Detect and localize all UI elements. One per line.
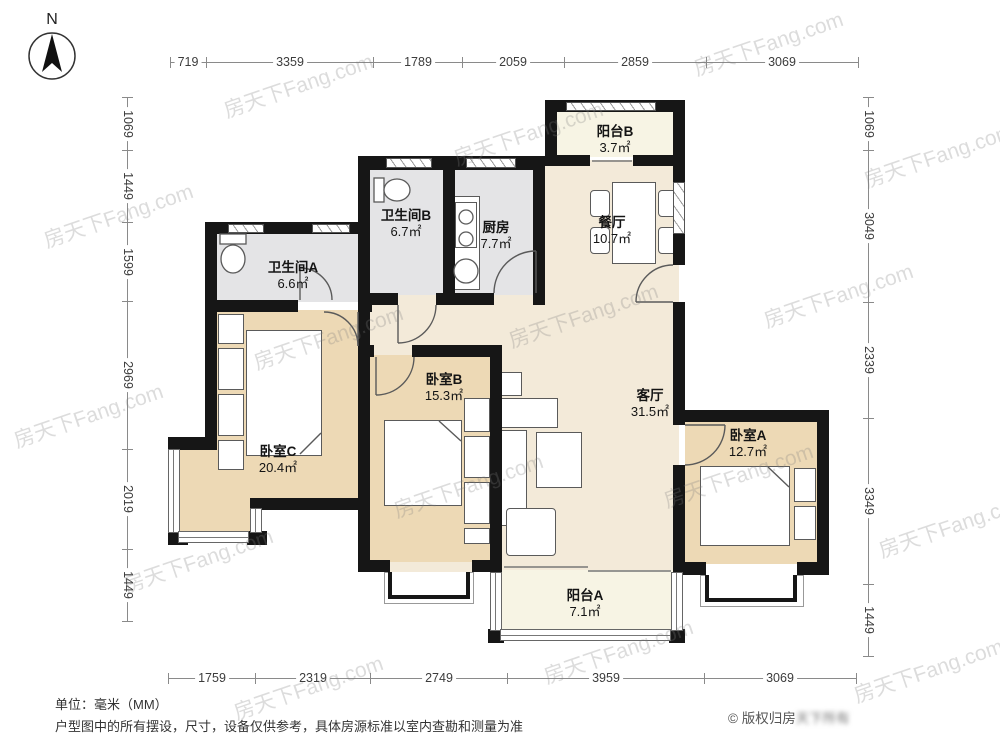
- dim-top: 2859: [618, 55, 652, 69]
- wall: [490, 345, 502, 572]
- balcony-a-wall: [500, 629, 671, 641]
- watermark: 房天下Fang.com: [849, 630, 1000, 709]
- dim-left: 1069: [121, 107, 135, 141]
- wall: [673, 465, 685, 575]
- sofa-corner: [500, 398, 558, 428]
- room-label-dining: 餐厅10.7㎡: [593, 215, 631, 247]
- wall: [673, 100, 685, 182]
- bed-bedroom-c: [246, 330, 322, 456]
- room-label-bedroom-a: 卧室A12.7㎡: [729, 428, 767, 460]
- wall: [817, 410, 829, 575]
- dim-right: 3349: [862, 484, 876, 518]
- dim-top: 3359: [273, 55, 307, 69]
- coffee-table: [536, 432, 582, 488]
- wardrobe-bedroom-c: [218, 348, 244, 390]
- kitchen-stove: [455, 202, 477, 248]
- wall: [472, 560, 502, 572]
- dim-left: 2019: [121, 482, 135, 516]
- floorplan-page: { "meta": { "watermark": "房天下Fang.com", …: [0, 0, 1000, 750]
- wall: [673, 302, 685, 412]
- watermark: 房天下Fang.com: [229, 647, 387, 726]
- bay-window-wall: [250, 508, 262, 533]
- wall: [358, 293, 398, 305]
- dim-bottom: 3069: [763, 671, 797, 685]
- wall: [436, 293, 443, 305]
- room-label-kitchen: 厨房7.7㎡: [480, 220, 511, 252]
- wardrobe-bedroom-a: [794, 468, 816, 502]
- compass-n-letter: N: [46, 11, 58, 28]
- watermark: 房天下Fang.com: [759, 255, 917, 334]
- wall: [205, 300, 298, 312]
- dim-left: 1449: [121, 568, 135, 602]
- balcony-a-wall: [671, 572, 683, 631]
- wall: [358, 560, 390, 572]
- copyright: © 版权归房天下所有: [728, 707, 850, 727]
- bay-window-wall: [168, 449, 180, 533]
- dining-chair: [590, 190, 610, 217]
- window: [466, 158, 516, 168]
- wardrobe-bedroom-c: [218, 394, 244, 436]
- dim-right: 2339: [862, 343, 876, 377]
- wall: [673, 410, 685, 425]
- window: [312, 224, 350, 233]
- watermark: 房天下Fang.com: [874, 485, 1000, 564]
- dim-left: 1449: [121, 169, 135, 203]
- room-label-balcony-a: 阳台A7.1㎡: [567, 588, 604, 620]
- dim-bottom: 1759: [195, 671, 229, 685]
- wall: [797, 562, 829, 575]
- room-label-balcony-b: 阳台B3.7㎡: [597, 124, 634, 156]
- room-label-bedroom-b: 卧室B15.3㎡: [425, 372, 463, 404]
- dim-right: 1449: [862, 603, 876, 637]
- wall: [673, 410, 829, 422]
- balcony-a-wall: [490, 572, 502, 631]
- bed-bedroom-a: [700, 466, 790, 546]
- wall: [443, 293, 494, 305]
- room-label-bathroom-a: 卫生间A6.6㎡: [268, 260, 318, 292]
- bay-window-wall: [178, 531, 249, 543]
- dim-top: 1789: [401, 55, 435, 69]
- watermark: 房天下Fang.com: [39, 175, 197, 254]
- wall: [358, 156, 370, 312]
- room-label-living: 客厅31.5㎡: [631, 388, 669, 420]
- dim-left: 2969: [121, 358, 135, 392]
- window: [673, 182, 685, 234]
- dim-bottom: 2319: [296, 671, 330, 685]
- wall: [205, 222, 217, 312]
- wardrobe-bedroom-c: [218, 314, 244, 344]
- window: [566, 102, 656, 111]
- wall: [358, 300, 370, 562]
- window: [228, 224, 264, 233]
- wardrobe-bedroom-b: [464, 398, 490, 432]
- wall: [247, 531, 267, 545]
- wardrobe-bedroom-b: [464, 528, 490, 544]
- wall: [673, 234, 685, 265]
- wardrobe-bedroom-c: [218, 440, 244, 470]
- wardrobe-bedroom-b: [464, 436, 490, 478]
- wall: [443, 156, 455, 305]
- bay-window-bedroom-b: [388, 572, 470, 599]
- wall: [669, 629, 685, 643]
- wall: [205, 300, 217, 447]
- room-label-bedroom-c: 卧室C20.4㎡: [259, 444, 297, 476]
- wardrobe-bedroom-b: [464, 482, 490, 524]
- dim-right: 1069: [862, 107, 876, 141]
- wall: [633, 155, 673, 166]
- dim-top: 719: [175, 55, 202, 69]
- dim-right: 3049: [862, 209, 876, 243]
- copyright-blurred: 天下所有: [796, 711, 850, 726]
- room-label-bathroom-b: 卫生间B6.7㎡: [381, 208, 431, 240]
- disclaimer: 户型图中的所有摆设，尺寸，设备仅供参考，具体房源标准以室内查勘和测量为准: [55, 716, 523, 735]
- watermark: 房天下Fang.com: [859, 115, 1000, 194]
- armchair: [506, 508, 556, 556]
- wall: [358, 345, 374, 357]
- watermark: 房天下Fang.com: [9, 375, 167, 454]
- window: [386, 158, 432, 168]
- watermark: 房天下Fang.com: [689, 3, 847, 82]
- wall: [250, 498, 370, 510]
- bay-window-bedroom-a: [705, 575, 797, 602]
- dim-bottom: 3959: [589, 671, 623, 685]
- dim-bottom: 2749: [422, 671, 456, 685]
- unit-note: 单位：毫米（MM）: [55, 694, 168, 713]
- bed-bedroom-b: [384, 420, 462, 506]
- north-compass-icon: N: [16, 4, 88, 90]
- wall: [533, 156, 545, 305]
- wardrobe-bedroom-a: [794, 506, 816, 540]
- dim-top: 3069: [765, 55, 799, 69]
- dim-left: 1599: [121, 245, 135, 279]
- wall: [412, 345, 502, 357]
- wall: [545, 155, 590, 166]
- dim-top: 2059: [496, 55, 530, 69]
